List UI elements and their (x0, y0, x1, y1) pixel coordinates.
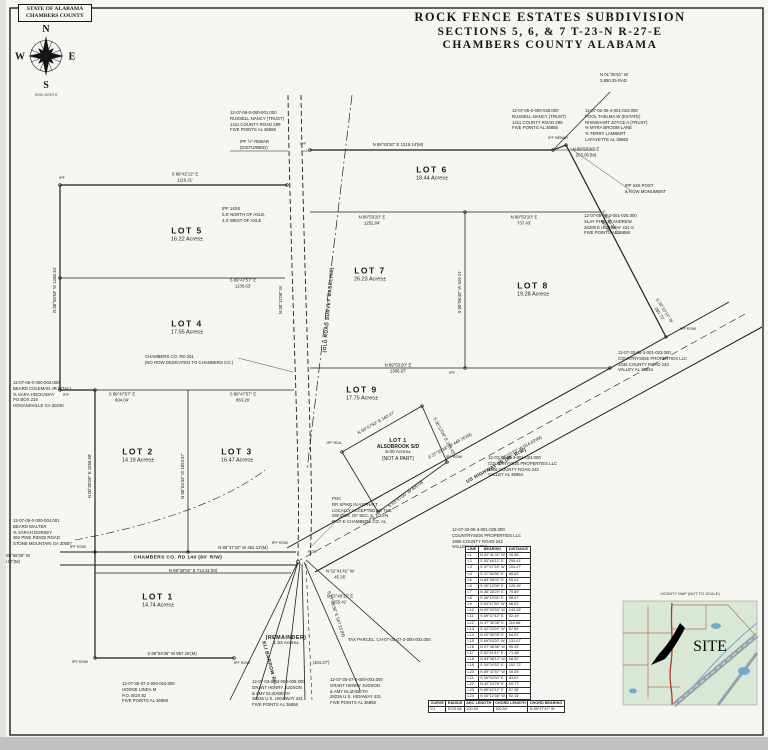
lot-name: LOT 1 (142, 593, 174, 603)
lot-acreage: 1.63 Acres± (266, 641, 307, 647)
table-cell: S 36°12'04" E (478, 596, 507, 602)
lot-acreage: 26.23 Acres± (354, 276, 386, 283)
bearing-label: S 89°47'57" E863.29' (230, 391, 257, 402)
table-header-cell: CHORD BEARING (528, 701, 565, 707)
table-cell: S 32°23'29" W (478, 626, 507, 632)
bearing-text: N 89°53'20" E (385, 362, 412, 368)
owner-note-line: GRANT HENRY JUDSON (330, 683, 383, 689)
survey-marker: IPF RDA (327, 442, 342, 446)
lot-label: LOT 516.22 Acres± (171, 227, 203, 244)
bearing-label: S 89°53'35" W 957.26'(M) (147, 651, 196, 657)
bearing-label: N 89°53'20" E737.43' (511, 214, 538, 225)
owner-note-line: 12-07-06-0-000-001.000 (230, 110, 284, 116)
owner-note: IPF 14X80.8' NORTH OF AXLE,4.3' WEST OF … (222, 206, 266, 223)
lot-acreage: 16.22 Acres± (171, 236, 203, 243)
owner-note: CHAMBERS CO. RD 251(NO ROW DEDICATED TO … (145, 354, 233, 366)
table-cell: N 00°03'53" W (478, 608, 507, 614)
table-cell: N 53°48'12" W (478, 657, 507, 663)
survey-marker: IPF REBAR (548, 137, 568, 141)
owner-note: POCRR SPIKE IN ASPHALTLOCALLY ACCEPTED A… (332, 496, 392, 525)
owner-note-line: 12-07-05-0-000-028.000 (512, 108, 566, 114)
bearing-label: S 89°42'12" E1119.21' (172, 171, 199, 182)
lot-label: LOT 214.19 Acres± (122, 448, 154, 465)
bearing-label: N 89°28'02" E 714.31'(M) (169, 568, 217, 574)
owner-note: 12-07-03-07-3-000-009.000GRANT HENRY JUD… (252, 679, 305, 708)
distance-text: 45.36' (326, 574, 354, 580)
owner-note: 12-07-06-0-000-001.000RUSSELL NANCY (TRU… (230, 110, 284, 133)
bearing-text: S 89°42'12" E (172, 171, 199, 177)
lot-label: LOT 114.74 Acres± (142, 593, 174, 610)
lot-name: LOT 4 (171, 320, 203, 330)
bearing-text: N 00°12'08" W (278, 286, 284, 314)
bearing-text: S 89°47'57" E (230, 391, 257, 397)
table-cell: S 53°48'12" E (478, 559, 507, 565)
table-cell: 100.54' (493, 707, 528, 713)
owner-note-line: RUSSELL NANCY (TRUST) (512, 114, 566, 120)
table-cell: 100.54' (464, 707, 493, 713)
lot-acreage: 19.28 Acres± (517, 291, 549, 298)
owner-note: IPF ½" REBAR(DISTURBED) (240, 139, 269, 151)
table-cell: S 52°41'41" E (478, 651, 507, 657)
owner-note-line: 2,850.25 RAD (600, 78, 628, 84)
table-cell: N 89°47'57" W (478, 669, 507, 675)
bearing-text: N 89°53'20" E (573, 146, 600, 152)
lot-name: LOT 2 (122, 448, 154, 458)
bearing-text: S 89°47'57" E (230, 277, 257, 283)
lot-acreage: 17.55 Acres± (171, 329, 203, 336)
distance-text: 1119.21' (172, 177, 199, 183)
owner-note-line: FIVE POINTS AL 36858 (122, 698, 175, 704)
table-cell: N 36°28'20" E (478, 589, 507, 595)
photo-edge-left (0, 0, 6, 750)
owner-note-line: POOL THELMA W (ESTATE) (585, 114, 647, 120)
owner-note-line: TAX PARCEL: CH-07-02-07-3-000-002.000 (348, 637, 431, 643)
owner-note-line: 12-07-35-07-2-000-010.000 (122, 681, 175, 687)
bearing-text: N 89°53'20" E 1319.14'(M) (373, 142, 424, 148)
owner-note-line: 4.3' WEST OF AXLE (222, 218, 266, 224)
bearing-text: S 00°06'40" W 529.21' (457, 271, 463, 314)
owner-note: N 89°58'29" W60.07'(M) (2, 553, 30, 565)
survey-marker: IPF ROW (70, 546, 86, 550)
lot-acreage: 16.47 Acres± (221, 457, 253, 464)
bearing-text: N 00°04'33" W 1093.57' (180, 453, 186, 499)
line-table: LINEBEARINGDISTANCEL1N 52°41'41" W45.36'… (465, 546, 531, 712)
survey-marker: IPF ROW (234, 662, 250, 666)
road-label: CHAMBERS CO. RD 140 (80' R/W) (134, 557, 222, 562)
owner-note-line: FIVE POINTS AL 36858 (252, 702, 305, 708)
owner-note-line: BEARD COLEMAN JR (ETAL) (13, 386, 71, 392)
vicinity-pond-2 (738, 667, 750, 675)
vicinity-map-graphic: SITE (620, 599, 760, 707)
owner-note: 12-07-35-07-0-000-003.000GRANT HENRY JUD… (330, 677, 383, 706)
lot-name: LOT 3 (221, 448, 253, 458)
lot-label: LOT 819.28 Acres± (517, 282, 549, 299)
bearing-label: N 89°47'42" W 452.12'(M) (218, 545, 268, 551)
owner-note-line: & ROW MONUMENT (625, 189, 666, 195)
owner-note-line: 60.07'(M) (2, 559, 30, 565)
bearing-label: S 30°10'14" W260.70' (650, 297, 674, 326)
owner-note-line: 12-07-35-07-0-000-003.000 (330, 677, 383, 683)
table-cell: S 00°04'33" E (478, 663, 507, 669)
lot-name: LOT 9 (346, 386, 378, 396)
table-cell: N 00°05'09" E (478, 632, 507, 638)
survey-marker: IPF ROW (680, 328, 696, 332)
vicinity-pond-3 (629, 689, 637, 694)
distance-text: 1136.63' (230, 283, 257, 289)
table-cell: C1 (429, 707, 446, 713)
bearing-label: (104.27') (313, 660, 330, 666)
lot-acreage: 14.19 Acres± (122, 457, 154, 464)
owner-note-line: FIVE POINTS AL 36858 (584, 230, 637, 236)
road-label: (OLD ROAD SURVEY BASELINE) (324, 267, 336, 353)
bearing-label: S 89°47'57" E1136.63' (230, 277, 257, 288)
table-cell: S 00°12'08" E (478, 583, 507, 589)
site-label: SITE (693, 638, 727, 655)
owner-note: IPF 6X6 POST& ROW MONUMENT (625, 183, 666, 195)
bearing-label: S 53°47'50" W 400.06' (387, 479, 425, 509)
table-cell: S 89°47'42" E (478, 614, 507, 620)
owner-note-line: STONE MOUNTAIN GA 30087 (13, 541, 72, 547)
survey-marker: IPF ROW (72, 661, 88, 665)
table-cell: N 52°41'41" W (478, 553, 507, 559)
bearing-text: N 59°47'50" E 160.47' (356, 410, 395, 436)
bearing-text: (104.27') (313, 660, 330, 666)
lot-label: LOT 726.23 Acres± (354, 267, 386, 284)
bearing-text: N 52°41'41" W (326, 568, 354, 574)
survey-marker: POB (308, 551, 316, 555)
lot-label: LOT 618.44 Acres± (416, 166, 448, 183)
lot-label: LOT 316.47 Acres± (221, 448, 253, 465)
table-header-cell: CURVE (429, 701, 446, 707)
owner-note: 12-07-05-06-3-001-025.000SLAY PHILLIP AN… (584, 213, 637, 236)
bearing-label: N 00°03'53" W 1288.34' (52, 267, 58, 313)
table-cell: S 53°47'50" W (478, 602, 507, 608)
distance-text: 863.29' (230, 397, 257, 403)
distance-text: 253.06'(M) (573, 152, 600, 158)
plat-sheet: N S E W GRID NORTH STATE OF ALABAMA CHAM… (0, 0, 768, 750)
owner-note-line: IPF ½" REBAR (240, 139, 269, 145)
owner-note-line: RUSSELL NANCY (TRUST) (230, 116, 284, 122)
owner-note-line: (NO ROW DEDICATED TO CHAMBERS CO.) (145, 360, 233, 366)
owner-note: 12-07-06-0-000-004.001BEARD WALTER% SARA… (13, 518, 72, 547)
lot-label: LOT 1ALSOBROOK S/D5.00 Acres±(NOT A PART… (377, 438, 419, 462)
owner-note-line: (DISTURBED) (240, 145, 269, 151)
lot-label: LOT 917.75 Acres± (346, 386, 378, 403)
table-cell: S 89°42'12" E (478, 687, 507, 693)
owner-note-line: LAFAYETTE AL 36862 (585, 137, 647, 143)
distance-text: 604.04' (109, 397, 136, 403)
table-cell: S 37°27'23" W (478, 565, 507, 571)
owner-note: 12-07-33-06-3-001-023.000COUNTRYSIDE PRO… (618, 350, 687, 373)
lot-acreage: 14.74 Acres± (142, 602, 174, 609)
owner-note: N 01°25'51" W2,850.25 RAD (600, 72, 628, 84)
owner-note: 12-07-35-07-2-000-010.000HODGE LINDA MP.… (122, 681, 175, 704)
bearing-label: N 52°41'41" W45.36' (326, 568, 354, 579)
bearing-text: N 00°05'09" E 1058.98' (87, 454, 93, 498)
distance-text: 737.43' (511, 220, 538, 226)
owner-note-line: 0.8' NORTH OF AXLE, (222, 212, 266, 218)
survey-marker: IPF (369, 518, 375, 522)
owner-note-line: R-27-E CHAMBERS CO. AL (332, 519, 392, 525)
bearing-label: N 89°53'20" E253.06'(M) (573, 146, 600, 157)
lot-acreage: 17.75 Acres± (346, 395, 378, 402)
owner-note-line: COUNTRYSIDE PROPERTIES LLC (452, 533, 521, 539)
bearing-text: N 00°03'53" W 1288.34' (52, 267, 58, 313)
bearing-text: N 89°28'02" E 714.31'(M) (169, 568, 217, 574)
lot-name: LOT 5 (171, 227, 203, 237)
table-header-cell: ARC LENGTH (464, 701, 493, 707)
bearing-label: N 00°04'33" W 1093.57' (180, 453, 186, 499)
bearing-label: S 89°47'57" E604.04' (109, 391, 136, 402)
survey-marker: IPF (59, 177, 65, 181)
owner-note-line: FIVE POINTS AL 36858 (330, 700, 383, 706)
bearing-label: N 89°53'20" E 1319.14'(M) (373, 142, 424, 148)
table-cell: N 07°46'36" W (478, 645, 507, 651)
owner-note-line: FIVE POINTS AL 36855 (512, 125, 566, 131)
lot-name: LOT 8 (517, 282, 549, 292)
table-cell: N 89°28'02" E (478, 577, 507, 583)
distance-text: 1386.97' (385, 368, 412, 374)
owner-note-line: N 01°25'51" W (600, 72, 628, 78)
bearing-text: S 89°47'57" E (109, 391, 136, 397)
bearing-text: S 53°47'50" W 400.06' (387, 479, 425, 509)
table-cell: N 00°12'08" W (478, 694, 507, 700)
curve-table-row: C15729.58'100.54'100.54'N 89°47'42" W (429, 707, 565, 713)
table-header-cell: RADIUS (446, 701, 465, 707)
table-cell: N 89°47'42" W (528, 707, 565, 713)
bearing-label: N 89°53'20" E1386.97' (385, 362, 412, 373)
owner-note-line: GRANT HENRY JUDSON (252, 685, 305, 691)
vicinity-map: VICINITY MAP (NOT TO SCALE) SITE (620, 592, 760, 707)
owner-note-line: HOGANSVILLE GA 30230 (13, 403, 71, 409)
owner-note: 12-07-05-0-000-028.000RUSSELL NANCY (TRU… (512, 108, 566, 131)
owner-note-line: N 89°58'29" W (2, 553, 30, 559)
table-cell: S 07°46'36" E (478, 571, 507, 577)
lot-name: LOT 7 (354, 267, 386, 277)
vicinity-title: VICINITY MAP (NOT TO SCALE) (620, 592, 760, 596)
table-header-cell: DISTANCE (507, 547, 530, 553)
vicinity-pond-1 (711, 623, 721, 629)
bearing-text: N 89°53'20" E (511, 214, 538, 220)
table-cell: N 37°35'38" E (478, 620, 507, 626)
survey-marker: IPF (300, 143, 306, 147)
bearing-text: N 89°47'42" W 452.12'(M) (218, 545, 268, 551)
survey-marker: IPF (449, 372, 455, 376)
owner-note-line: SLAY PHILLIP ANDREW (584, 219, 637, 225)
owner-note-line: 12-07-03-07-3-000-009.000 (252, 679, 305, 685)
distance-text: 1252.84' (359, 220, 386, 226)
bearing-text: S 89°53'35" W 957.26'(M) (147, 651, 196, 657)
survey-marker: IPF ROW (272, 542, 288, 546)
survey-marker: IPF ROW (446, 456, 462, 460)
bearing-label: N 59°47'50" E 160.47' (356, 410, 395, 436)
lot-note: (NOT A PART) (377, 456, 419, 462)
bearing-label: S 00°06'40" W 529.21' (457, 271, 463, 314)
owner-note: 12-07-02-06-4-001-023.000POOL THELMA W (… (585, 108, 647, 143)
table-header-cell: CHORD LENGTH (493, 701, 528, 707)
owner-note-line: VALLEY AL 36854 (488, 472, 557, 478)
bearing-label: N 00°05'09" E 1058.98' (87, 454, 93, 498)
lot-label: LOT 417.55 Acres± (171, 320, 203, 337)
bearing-label: N 00°12'08" W (278, 286, 284, 314)
table-cell: N 32°23'29" E (478, 681, 507, 687)
survey-marker: IPF (63, 394, 69, 398)
curve-table: CURVERADIUSARC LENGTHCHORD LENGTHCHORD B… (428, 700, 565, 713)
bearing-text: N 89°53'20" E (359, 214, 386, 220)
owner-note-line: COUNTRYSIDE PROPERTIES LLC (618, 356, 687, 362)
lot-acreage: 18.44 Acres± (416, 175, 448, 182)
table-cell: S 36°00'00" E (478, 675, 507, 681)
owner-note-line: FIVE POINTS AL 36855 (230, 127, 284, 133)
owner-note-line: VALLEY AL 36854 (618, 367, 687, 373)
photo-edge-bottom (0, 737, 768, 750)
owner-note: TAX PARCEL: CH-07-02-07-3-000-002.000 (348, 637, 431, 643)
lot-label: (REMAINDER)1.63 Acres± (266, 635, 307, 647)
table-cell: S 89°53'20" W (478, 638, 507, 644)
bearing-label: N 89°53'20" E1252.84' (359, 214, 386, 225)
lot-name: LOT 6 (416, 166, 448, 176)
table-cell: 5729.58' (446, 707, 465, 713)
owner-note-line: 12-07-05-06-3-001-025.000 (584, 213, 637, 219)
